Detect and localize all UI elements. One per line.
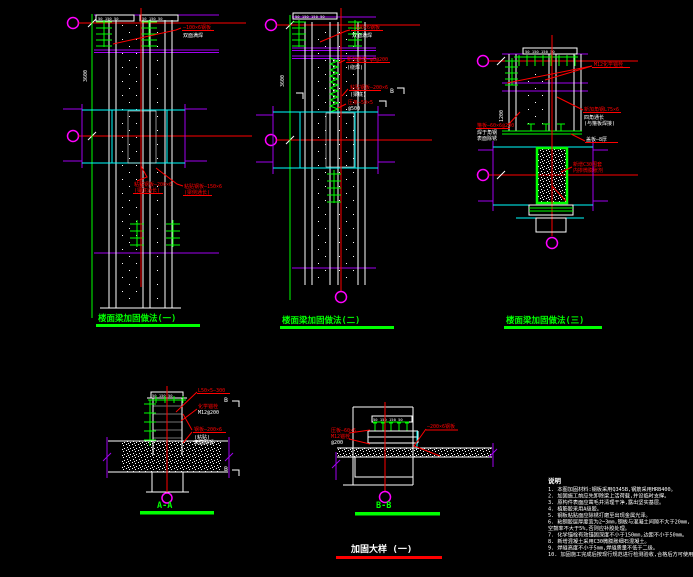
dim-height: 3600 [280,75,286,87]
section-b-title: B-B [376,501,391,511]
note-line: 2. 加固施工前应先卸除梁上活荷载,并设临时支撑。 [548,492,669,500]
tie-ladder-below-beam [327,170,341,203]
detail-2-title: 楼面梁加固做法(二) [282,315,360,326]
dim-strip: 50 150 50 [98,16,119,21]
section-letter: B [224,396,228,404]
callout-text: 四角通长 [584,114,604,121]
callout-text: 粘贴钢板—200×6 [350,84,388,91]
note-line: 空鼓率不大于5%,否则应补胶处理。 [548,524,630,532]
note-line: 7. 化学锚栓有效锚固深度不小于150mm,边距不小于50mm。 [548,531,687,539]
callout-text: M12锚栓 [331,433,350,440]
title-underline [280,326,394,329]
section-a: 50 150 50 B B L50×5—300 化学锚栓 M12@200 [103,386,239,515]
callout-text: 双面满焊 [352,32,372,39]
cad-svg: 50 150 50 50 150 50 —100×6钢板 双面满焊 粘贴钢板—2… [0,0,693,577]
title-underline [140,511,214,515]
note-line: 4. 植筋胶采用A级胶。 [548,505,602,513]
callout-text: @200 [331,440,343,446]
axis-bubble [547,238,558,249]
concrete-block [355,457,413,477]
callout-text: 焊于角钢 [477,129,497,136]
callout-text: M12化学锚栓 [594,61,623,68]
notes-header: 说明 [548,476,562,485]
callout-text: 新加箍筋—φ8@200 [347,56,388,63]
callout-text: 箍板—60×6@200 [477,122,514,129]
concrete-slab [337,449,492,458]
note-line: 8. 新增混凝土采用C30微膨胀细石混凝土。 [548,537,650,545]
dim-strip: 50 150 150 50 [295,14,325,19]
callout-text: (梁底通长) [134,187,160,194]
callout-text: 粘贴钢板—150×6 [184,183,222,190]
callout-text: —100×6钢板 [183,24,211,31]
note-line: 1. 本图加固材料:钢板采用Q345B,钢筋采用HRB400。 [548,485,676,493]
dim-strip: 50 150 150 50 [373,417,403,422]
detail-2: 50 150 150 50 B —100×6钢板 双面满 [256,8,432,329]
section-letter: B [390,87,394,95]
concrete-speckle [117,25,142,303]
callout-plate: 盖板—8厚 [571,134,618,143]
callout-text: —200×6钢板 [427,423,455,430]
axis-bubble [68,18,79,29]
detail-1-title: 楼面梁加固做法(一) [98,313,176,324]
concrete-speckle [313,26,329,281]
axis-bubble [478,170,489,181]
section-b: 50 150 150 50 压板—60×6 M12锚栓 @200 —200×6钢… [331,402,497,516]
title-underline [96,324,200,327]
axis-bubble [68,131,79,142]
sheet-title: 加固大样 (一) [350,543,412,555]
detail-3: 50 150 150 50 M12化学锚栓 新加角钢L75×6 四角通长 (与箍… [476,35,638,329]
callout-text: (绕焊) [347,64,363,71]
note-line: 10. 加固施工完成后按现行规范进行检测验收,合格后方可使用。 [548,550,693,558]
callout-text: (梁侧通长) [184,189,210,196]
cad-drawing-canvas: 50 150 50 50 150 50 —100×6钢板 双面满焊 粘贴钢板—2… [0,0,693,577]
callout-text: M12@200 [198,410,219,416]
note-line: 5. 钢板粘贴面应除锈打磨至出现金属光泽。 [548,511,651,519]
detail-3-title: 楼面梁加固做法(三) [506,315,584,326]
anchor-bolts [373,422,409,431]
callout-text: @500 [348,106,360,112]
axis-bubble [266,20,277,31]
note-line: 6. 粘钢胶层厚度宜为2~3mm,钢板与混凝土间隙不大于20mm, [548,518,690,526]
callout-angle: 新加角钢L75×6 四角通长 (与箍板焊接) [557,97,621,127]
detail-1: 50 150 50 50 150 50 —100×6钢板 双面满焊 粘贴钢板—2… [63,8,252,327]
callout-text: 内掺微膨胀剂 [573,167,603,174]
callout-text: 表面除锈 [194,439,214,446]
section-a-title: A-A [157,501,172,511]
callout-text: 新加角钢L75×6 [584,106,619,113]
callout-text: 粘贴钢板—200×6 [134,181,172,188]
callout-text: (与箍板焊接) [584,120,615,127]
dim-strip: 50 150 50 [152,393,173,398]
dim-height: 1200 [499,110,505,122]
callout-text: (梁底) [350,91,366,98]
axis-bubble [478,56,489,67]
axis-bubble [266,135,277,146]
note-line: 3. 原构件表面应凿毛并清理干净,露出坚实基层。 [548,498,664,506]
callout-2: 化学锚栓 M12@200 [181,403,219,421]
title-underline [355,512,440,516]
sheet-title-block: 加固大样 (一) [336,543,442,559]
callout-text: 表面除锈 [477,135,497,142]
pedestal [516,205,584,232]
notes-block: 说明 1. 本图加固材料:钢板采用Q345B,钢筋采用HRB400。 2. 加固… [548,476,693,558]
callout-text: —100×6钢板 [352,24,380,31]
dim-strip: 50 150 150 50 [525,49,555,54]
axis-bubble [336,292,347,303]
callout-text: 压板—60×6 [331,427,356,434]
callout-batten: 箍板—60×6@200 焊于角钢 表面除锈 [476,112,520,142]
concrete-speckle [151,25,164,303]
sheet-title-underline [336,556,442,559]
note-line: 9. 焊缝高度不小于5mm,焊缝质量不低于二级。 [548,544,658,552]
callout-text: 新增C30围套 [573,161,602,168]
section-letter: B [224,465,228,473]
callout-text: 盖板—8厚 [586,136,607,143]
section-cut-marks: B B [224,396,239,476]
callout-text: 压条—50×5 [348,99,373,106]
callout-text: 化学锚栓 [198,403,218,410]
callout-text: 钢板—200×6 [194,426,222,433]
callout-text: 双面满焊 [183,32,203,39]
callout-left: 压板—60×6 M12锚栓 @200 [331,427,370,446]
title-underline [504,326,602,329]
dim-height: 3600 [83,70,89,82]
dim-strip: 50 150 50 [142,16,163,21]
tie-marks [144,396,186,446]
